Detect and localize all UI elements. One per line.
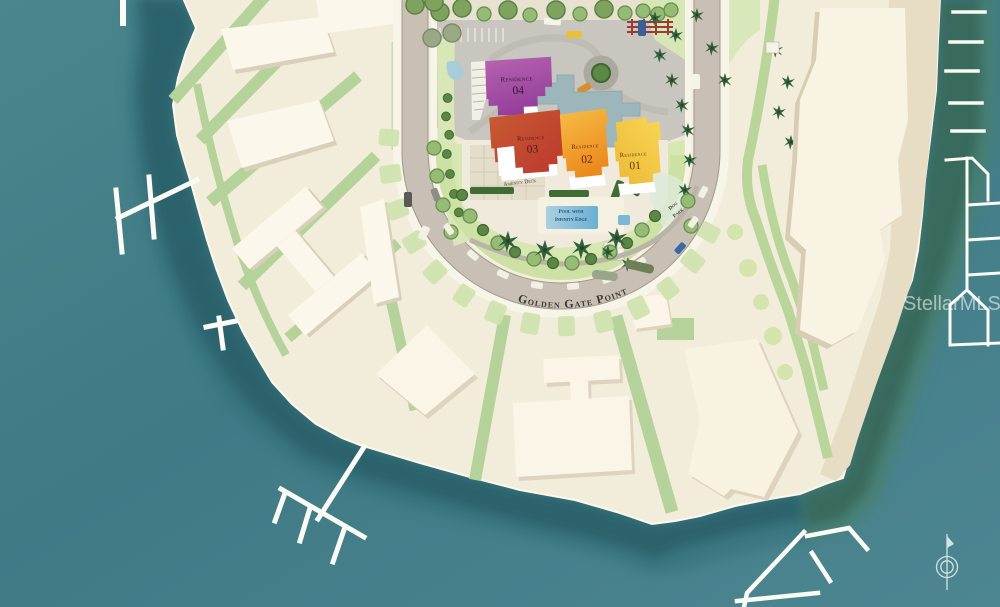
svg-text:Residence: Residence <box>501 75 533 83</box>
svg-text:04: 04 <box>512 85 524 97</box>
svg-text:StellarMLS: StellarMLS <box>903 293 1000 315</box>
svg-text:Pool with: Pool with <box>559 209 585 215</box>
svg-text:02: 02 <box>581 153 594 166</box>
svg-text:01: 01 <box>629 160 642 173</box>
svg-text:Infinity Edge: Infinity Edge <box>555 217 588 223</box>
svg-text:03: 03 <box>526 143 539 156</box>
